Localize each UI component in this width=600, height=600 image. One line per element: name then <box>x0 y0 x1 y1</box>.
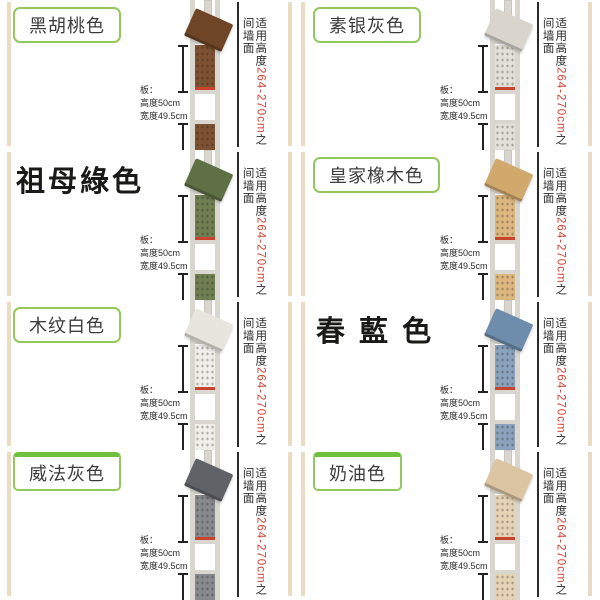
fit-height-prefix: 适用高度 <box>254 467 266 517</box>
board-spec-text: 板： 高度50cm 宽度49.5cm <box>440 84 492 123</box>
pegboard-lower <box>495 574 515 600</box>
pegboard-lower <box>195 424 215 450</box>
board-spec-height: 高度50cm <box>140 247 192 260</box>
height-reference-line <box>237 302 239 447</box>
pegboard-upper <box>195 345 215 387</box>
fit-height-range: 264-270cm <box>254 517 266 584</box>
color-name-label: 奶油色 <box>313 452 402 491</box>
red-marker-line <box>195 387 215 390</box>
measure-bracket-lower <box>478 573 488 600</box>
board-spec-height: 高度50cm <box>440 397 492 410</box>
frame-rung <box>495 390 515 394</box>
red-marker-line <box>195 237 215 240</box>
red-marker-line <box>195 87 215 90</box>
measure-bracket-lower <box>478 423 488 450</box>
board-spec-height: 高度50cm <box>440 547 492 560</box>
measure-bracket-lower <box>478 273 488 300</box>
product-color-grid: 板： 高度50cm 宽度49.5cm 适用高度264-270cm之间墙面 黑胡桃… <box>0 0 600 600</box>
height-reference-line <box>237 2 239 147</box>
fit-height-range: 264-270cm <box>254 67 266 134</box>
color-variant-cell: 板： 高度50cm 宽度49.5cm 适用高度264-270cm之间墙面 木纹白… <box>0 300 300 450</box>
board-spec-text: 板： 高度50cm 宽度49.5cm <box>140 534 192 573</box>
board-spec-width: 宽度49.5cm <box>140 110 192 123</box>
fit-height-note: 适用高度264-270cm之间墙面 <box>241 467 266 597</box>
board-spec-height: 高度50cm <box>140 547 192 560</box>
board-spec-height: 高度50cm <box>440 97 492 110</box>
board-spec-text: 板： 高度50cm 宽度49.5cm <box>140 384 192 423</box>
fit-height-prefix: 适用高度 <box>254 167 266 217</box>
color-variant-cell: 板： 高度50cm 宽度49.5cm 适用高度264-270cm之间墙面 威法灰… <box>0 450 300 600</box>
board-spec-text: 板： 高度50cm 宽度49.5cm <box>440 534 492 573</box>
board-spec-text: 板： 高度50cm 宽度49.5cm <box>440 234 492 273</box>
fit-height-prefix: 适用高度 <box>554 317 566 367</box>
color-name-label: 黑胡桃色 <box>13 7 121 43</box>
pegboard-upper <box>495 495 515 537</box>
color-variant-cell: 板： 高度50cm 宽度49.5cm 适用高度264-270cm之间墙面 春 藍… <box>300 300 600 450</box>
pegboard-upper <box>195 495 215 537</box>
board-spec-text: 板： 高度50cm 宽度49.5cm <box>140 84 192 123</box>
frame-rung <box>195 90 215 94</box>
color-variant-cell: 板： 高度50cm 宽度49.5cm 适用高度264-270cm之间墙面 黑胡桃… <box>0 0 300 150</box>
color-variant-cell: 板： 高度50cm 宽度49.5cm 适用高度264-270cm之间墙面 奶油色 <box>300 450 600 600</box>
fit-height-note: 适用高度264-270cm之间墙面 <box>241 317 266 447</box>
fit-height-range: 264-270cm <box>554 517 566 584</box>
height-reference-line <box>237 152 239 297</box>
fit-height-prefix: 适用高度 <box>554 17 566 67</box>
measure-bracket-lower <box>178 123 188 150</box>
pegboard-upper <box>495 45 515 87</box>
board-spec-title: 板： <box>140 84 192 97</box>
color-name-label: 春 藍 色 <box>316 308 434 350</box>
red-marker-line <box>495 537 515 540</box>
height-reference-line <box>537 302 539 447</box>
fit-height-range: 264-270cm <box>254 367 266 434</box>
board-spec-title: 板： <box>140 384 192 397</box>
fit-height-note: 适用高度264-270cm之间墙面 <box>541 467 566 597</box>
red-marker-line <box>495 387 515 390</box>
board-spec-height: 高度50cm <box>440 247 492 260</box>
fit-height-range: 264-270cm <box>554 367 566 434</box>
color-name-label: 威法灰色 <box>13 452 121 491</box>
board-spec-title: 板： <box>440 384 492 397</box>
fit-height-prefix: 适用高度 <box>254 17 266 67</box>
frame-rung <box>195 240 215 244</box>
frame-rung <box>495 90 515 94</box>
fit-height-prefix: 适用高度 <box>554 467 566 517</box>
fit-height-note: 适用高度264-270cm之间墙面 <box>541 317 566 447</box>
measure-bracket-lower <box>178 573 188 600</box>
frame-rung <box>495 540 515 544</box>
color-name-label: 素银灰色 <box>313 7 421 43</box>
color-variant-cell: 板： 高度50cm 宽度49.5cm 适用高度264-270cm之间墙面 皇家橡… <box>300 150 600 300</box>
pegboard-upper <box>495 345 515 387</box>
height-reference-line <box>537 452 539 597</box>
color-variant-cell: 板： 高度50cm 宽度49.5cm 适用高度264-270cm之间墙面 祖母綠… <box>0 150 300 300</box>
fit-height-range: 264-270cm <box>554 67 566 134</box>
board-spec-width: 宽度49.5cm <box>140 560 192 573</box>
pegboard-lower <box>195 574 215 600</box>
board-spec-width: 宽度49.5cm <box>440 260 492 273</box>
board-spec-height: 高度50cm <box>140 97 192 110</box>
pegboard-upper <box>495 195 515 237</box>
fit-height-note: 适用高度264-270cm之间墙面 <box>541 167 566 297</box>
pegboard-upper <box>195 45 215 87</box>
board-spec-title: 板： <box>440 84 492 97</box>
frame-rung <box>495 240 515 244</box>
color-name-label: 祖母綠色 <box>16 158 144 200</box>
fit-height-range: 264-270cm <box>554 217 566 284</box>
red-marker-line <box>195 537 215 540</box>
red-marker-line <box>495 87 515 90</box>
board-spec-width: 宽度49.5cm <box>440 110 492 123</box>
red-marker-line <box>495 237 515 240</box>
color-variant-cell: 板： 高度50cm 宽度49.5cm 适用高度264-270cm之间墙面 素银灰… <box>300 0 600 150</box>
board-spec-title: 板： <box>440 234 492 247</box>
board-spec-title: 板： <box>140 234 192 247</box>
measure-bracket-lower <box>178 273 188 300</box>
board-spec-title: 板： <box>140 534 192 547</box>
board-spec-text: 板： 高度50cm 宽度49.5cm <box>140 234 192 273</box>
fit-height-note: 适用高度264-270cm之间墙面 <box>241 17 266 147</box>
height-reference-line <box>537 152 539 297</box>
board-spec-width: 宽度49.5cm <box>440 410 492 423</box>
board-spec-width: 宽度49.5cm <box>440 560 492 573</box>
fit-height-note: 适用高度264-270cm之间墙面 <box>541 17 566 147</box>
height-reference-line <box>237 452 239 597</box>
fit-height-prefix: 适用高度 <box>554 167 566 217</box>
frame-rung <box>195 540 215 544</box>
pegboard-upper <box>195 195 215 237</box>
board-spec-height: 高度50cm <box>140 397 192 410</box>
color-name-label: 木纹白色 <box>13 307 121 343</box>
height-reference-line <box>537 2 539 147</box>
board-spec-width: 宽度49.5cm <box>140 260 192 273</box>
board-spec-title: 板： <box>440 534 492 547</box>
measure-bracket-lower <box>178 423 188 450</box>
fit-height-range: 264-270cm <box>254 217 266 284</box>
pegboard-lower <box>495 274 515 300</box>
board-spec-text: 板： 高度50cm 宽度49.5cm <box>440 384 492 423</box>
fit-height-note: 适用高度264-270cm之间墙面 <box>241 167 266 297</box>
pegboard-lower <box>495 124 515 150</box>
pegboard-lower <box>195 124 215 150</box>
measure-bracket-lower <box>478 123 488 150</box>
color-name-label: 皇家橡木色 <box>313 157 440 193</box>
board-spec-width: 宽度49.5cm <box>140 410 192 423</box>
fit-height-prefix: 适用高度 <box>254 317 266 367</box>
frame-rung <box>195 390 215 394</box>
pegboard-lower <box>195 274 215 300</box>
pegboard-lower <box>495 424 515 450</box>
